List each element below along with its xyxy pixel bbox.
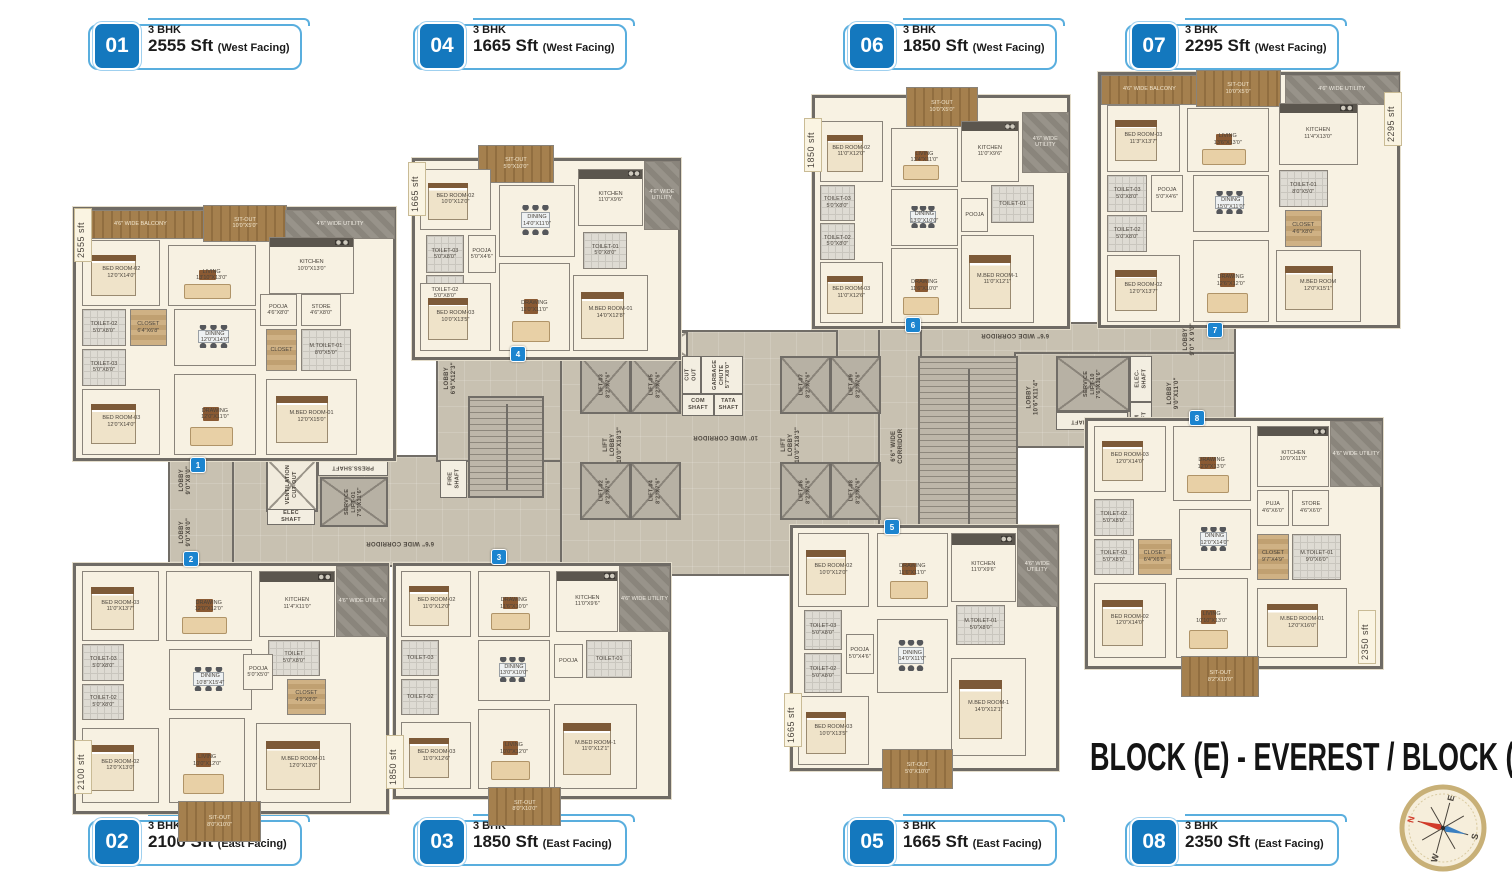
unit-area: 1850 Sft — [473, 832, 538, 851]
room-bed-room-02: BED ROOM-02 11'0"x12'0" — [820, 121, 882, 182]
room-closet: CLOSET 4'6"x8'0" — [1285, 210, 1323, 247]
room-pooja: POOJA 5'0"x4'6" — [1151, 175, 1183, 212]
com: COM SHAFT — [682, 394, 714, 416]
sqft-tag: 2295 sft — [1384, 92, 1402, 146]
room-4-6-wide-utility: 4'6" WIDE UTILITY — [1022, 112, 1069, 173]
room-toilet-03: TOILET-03 5'0"x8'0" — [82, 349, 125, 386]
service-lift: SERVICE LIFT-10 7'6"x11'6" — [1056, 356, 1130, 412]
room-bed-room-02: BED ROOM-02 12'0"x14'0" — [82, 240, 160, 306]
room-4-6-wide-utility: 4'6" WIDE UTILITY — [336, 566, 388, 637]
room-drawing: DRAWING 12'0"x11'0" — [174, 374, 255, 455]
room-bed-room-03: BED ROOM-03 12'0"x14'0" — [1094, 426, 1166, 492]
unit-06-plan: SIT-OUT 10'0"x5'0"4'6" WIDE UTILITYBED R… — [812, 95, 1070, 329]
room-drawing: DRAWING 11'6"x10'0" — [478, 571, 551, 637]
unit-area: 2295 Sft — [1185, 36, 1250, 55]
sofa-icon — [903, 165, 939, 180]
unit-number-badge: 08 — [1130, 818, 1178, 866]
room-4-6-wide-utility: 4'6" WIDE UTILITY — [644, 161, 680, 230]
unit-number-badge: 03 — [418, 818, 466, 866]
room-toilet-03: TOILET-03 — [401, 640, 438, 677]
sqft-tag: 2100 sft — [74, 740, 92, 794]
room-pooja: POOJA 5'0"x4'6" — [468, 235, 496, 272]
room-toilet-01: TOILET-01 — [586, 640, 632, 679]
lobby: LOBBY 10'6"x11'4" — [1016, 366, 1052, 428]
lift-05-lift: LIFT-05 8'2"x7'6" — [630, 356, 681, 414]
room-sit-out: SIT-OUT 5'0"x10'0" — [882, 749, 952, 789]
room-toilet-03: TOILET-03 5'0"x8'0" — [820, 185, 855, 221]
sofa-icon — [184, 284, 231, 299]
room-toilet-03: TOILET-03 5'0"x8'0" — [1094, 539, 1134, 575]
sofa-icon — [1202, 149, 1246, 165]
room-m-bed-room-01: M.BED ROOM-01 12'0"x13'0" — [256, 723, 351, 803]
sofa-icon — [491, 761, 530, 780]
legend-unit-04: 04 3 BHK 1665 Sft (West Facing) — [413, 22, 649, 68]
compass-icon: N S E W — [1399, 784, 1487, 877]
room-m-bed-room-1: M.BED ROOM-1 11'0"x12'1" — [554, 704, 638, 789]
legend-unit-01: 01 3 BHK 2555 Sft (West Facing) — [88, 22, 324, 68]
room-toilet-03: TOILET-03 5'0"x8'0" — [82, 644, 124, 680]
press-shaft: PRESS.SHAFT — [318, 459, 388, 476]
tata: TATA SHAFT — [714, 394, 743, 416]
room-drawing: DRAWING 11'0"x11'0" — [499, 263, 569, 351]
room-pooja: POOJA — [961, 198, 988, 232]
room-living: LIVING 13'10"x13'0" — [168, 245, 256, 307]
service-lift: SERVICE LIFT-01 7'6"x11'6" — [320, 477, 388, 527]
room-drawing: DRAWING 12'0"x12'0" — [166, 571, 252, 642]
6-6-wide-corridor: 6'6" WIDE CORRIDOR — [930, 328, 1100, 342]
room-kitchen: KITCHEN 11'4"x11'0" — [259, 571, 335, 637]
room-m-bed-room-1: M.BED ROOM-1 11'0"x12'1" — [961, 235, 1034, 324]
unit-08-plan: BED ROOM-03 12'0"x14'0"DRAWING 12'0"x13'… — [1085, 418, 1383, 669]
entry-marker-1: 1 — [190, 457, 206, 473]
legend-unit-08: 08 3 BHK 2350 Sft (East Facing) — [1125, 818, 1361, 864]
room-drawing: DRAWING 12'0"x13'0" — [1173, 426, 1251, 502]
entry-marker-6: 6 — [905, 317, 921, 333]
unit-area: 2555 Sft — [148, 36, 213, 55]
sqft-tag: 1850 sft — [804, 118, 822, 172]
unit-number-badge: 04 — [418, 22, 466, 70]
sqft-tag: 2555 sft — [74, 208, 92, 262]
sofa-icon — [491, 613, 530, 629]
unit-number-badge: 06 — [848, 22, 896, 70]
unit-area: 1665 Sft — [903, 832, 968, 851]
unit-05-plan: BED ROOM-02 10'0"x12'0"DRAWING 11'6"x11'… — [790, 525, 1059, 771]
sofa-icon — [903, 297, 939, 315]
room-toilet-01: TOILET-01 5'0"x8'0" — [583, 232, 627, 269]
entry-marker-7: 7 — [1207, 322, 1223, 338]
room-drawing: DRAWING 12'6"x12'0" — [1193, 240, 1269, 322]
sofa-icon — [1187, 475, 1228, 493]
unit-facing: (East Facing) — [1255, 838, 1324, 850]
unit-area: 1850 Sft — [903, 36, 968, 55]
sofa-icon — [890, 581, 928, 599]
staircase — [918, 356, 1018, 544]
unit-number-badge: 07 — [1130, 22, 1178, 70]
sofa-icon — [190, 427, 233, 446]
garbage: GARBAGE CHUTE 5'7"x8'0" — [701, 356, 743, 394]
lift-lobby: LIFT LOBBY 10'0"x18'3" — [776, 416, 808, 474]
unit-facing: (East Facing) — [973, 838, 1042, 850]
room-kitchen: KITCHEN 11'0"x9'6" — [578, 169, 643, 226]
room-bed-room-03: BED ROOM-03 11'3"x13'7" — [1107, 105, 1180, 172]
room-dining: DINING 12'0"x14'0" — [1179, 509, 1251, 570]
room-living: LIVING 10'0"x12'0" — [169, 718, 245, 803]
room-m-bed-room-1: M.BED ROOM-1 14'0"x12'1" — [951, 658, 1027, 756]
room-bed-room-02: BED ROOM-02 10'0"x12'0" — [798, 533, 868, 607]
unit-04-plan: SIT-OUT 5'0"x10'0"BED ROOM-02 10'0"x12'0… — [412, 158, 681, 360]
room-m-bed-room-01: M.BED ROOM-01 12'0"x15'0" — [266, 379, 357, 455]
room-kitchen: KITCHEN 11'4"x13'0" — [1279, 103, 1358, 165]
room-m-bed-room-01: M.BED ROOM-01 14'0"x12'8" — [573, 275, 649, 351]
room-dining: DINING 13'0"x10'0" — [478, 640, 551, 702]
lift-08-lift: LIFT-08 8'2"x7'6" — [830, 462, 881, 520]
room-dining: DINING 15'0"x11'0" — [1193, 175, 1269, 232]
unit-03-plan: BED ROOM-02 11'0"x12'0"DRAWING 11'6"x10'… — [393, 563, 671, 799]
unit-facing: (West Facing) — [543, 42, 615, 54]
room-toilet-02: TOILET-02 5'0"x8'0" — [1094, 499, 1134, 535]
10-wide-corridor: 10' WIDE CORRIDOR — [640, 430, 810, 444]
entry-marker-5: 5 — [884, 519, 900, 535]
unit-02-plan: BED ROOM-03 11'0"x13'7"DRAWING 12'0"x12'… — [73, 563, 389, 814]
room-store: STORE 4'6"x8'0" — [301, 294, 341, 326]
sqft-tag: 1665 sft — [408, 162, 426, 216]
sofa-icon — [1189, 630, 1227, 649]
unit-number-badge: 05 — [848, 818, 896, 866]
cut: CUT OUT — [682, 356, 701, 394]
lift-lobby: LIFT LOBBY 10'0"x18'3" — [598, 416, 630, 474]
entry-marker-2: 2 — [183, 551, 199, 567]
lobby: LOBBY 9'0"x11'0" — [1156, 364, 1192, 422]
6-6-wide-corridor: 6'6" WIDE CORRIDOR — [320, 536, 480, 550]
room-bed-room-03: BED ROOM-03 11'0"x12'6" — [820, 262, 882, 323]
block-title: BLOCK (E) - EVEREST / BLOCK (F) - FUJI — [1090, 735, 1490, 780]
unit-01-plan: 4'6" WIDE BALCONYSIT-OUT 10'0"x5'0"4'6" … — [73, 207, 396, 461]
room-toilet-02: TOILET-02 5'0"x8'0" — [82, 309, 125, 346]
sqft-tag: 1665 sft — [784, 693, 802, 747]
room-pooja: POOJA 5'0"x5'0" — [243, 654, 273, 690]
lift-03-lift: LIFT-03 8'2"x7'6" — [580, 356, 631, 414]
unit-area: 2350 Sft — [1185, 832, 1250, 851]
room-toilet: TOILET 5'0"x8'0" — [268, 640, 320, 676]
room-m-toilet-01: M.TOILET-01 5'0"x8'0" — [956, 605, 1005, 645]
lift-04-lift: LIFT-04 8'2"x7'6" — [630, 462, 681, 520]
sqft-tag: 2350 sft — [1358, 610, 1376, 664]
room-toilet-02: TOILET-02 5'0"x8'0" — [820, 223, 855, 259]
elec-shaft: ELEC-SHAFT — [1130, 356, 1152, 402]
fire: FIRE SHAFT — [440, 460, 467, 498]
room-kitchen: KITCHEN 11'0"x9'6" — [951, 533, 1016, 602]
room-toilet-02: TOILET-02 — [401, 679, 438, 716]
room-4-6-wide-utility: 4'6" WIDE UTILITY — [619, 566, 670, 632]
room-toilet-01: TOILET-01 8'0"x5'0" — [1279, 170, 1328, 207]
room-toilet-03: TOILET-03 5'0"x8'0" — [1107, 175, 1147, 212]
room-m-bed-room-01: M.BED ROOM-01 12'0"x16'0" — [1257, 588, 1347, 659]
room-living: LIVING 13'6"x13'0" — [1187, 108, 1269, 173]
room-pooja: POOJA — [554, 644, 583, 678]
room-4-6-wide-balcony: 4'6" WIDE BALCONY — [1101, 75, 1198, 105]
room-closet: CLOSET 6'4"x6'8" — [1138, 539, 1172, 575]
staircase — [468, 396, 544, 498]
room-dining: DINING 12'0"x14'0" — [174, 309, 255, 366]
entry-marker-8: 8 — [1189, 410, 1205, 426]
entry-marker-3: 3 — [491, 549, 507, 565]
sofa-icon — [182, 617, 228, 634]
room-pooja: POOJA 4'6"x8'0" — [260, 294, 297, 326]
unit-number-badge: 02 — [93, 818, 141, 866]
room-kitchen: KITCHEN 11'0"x9'6" — [556, 571, 618, 633]
room-living: LIVING 10'0"x12'0" — [478, 709, 551, 789]
ventilation: VENTILATION CUT-OUT — [266, 458, 318, 512]
room-pooja: POOJA 5'0"x4'6" — [846, 634, 874, 674]
room-dining: DINING 14'0"x11'0" — [499, 185, 575, 258]
room-4-6-wide-utility: 4'6" WIDE UTILITY — [1330, 421, 1382, 487]
room-kitchen: KITCHEN 11'0"x9'6" — [961, 121, 1018, 182]
unit-facing: (West Facing) — [1255, 42, 1327, 54]
room-bed-room-02: BED ROOM-02 11'0"x12'0" — [401, 571, 471, 637]
room-bed-room-03: BED ROOM-03 12'0"x14'0" — [82, 389, 160, 455]
room-toilet-01: TOILET-01 — [991, 185, 1033, 223]
room-toilet-03: TOILET-03 5'0"x8'0" — [804, 610, 843, 650]
room-sit-out: SIT-OUT 10'0"x5'0" — [203, 205, 287, 242]
room-drawing: DRAWING 11'6"x10'0" — [891, 248, 959, 323]
legend-unit-07: 07 3 BHK 2295 Sft (West Facing) — [1125, 22, 1361, 68]
lift-09-lift: LIFT-09 8'2"x7'6" — [830, 356, 881, 414]
room-closet: CLOSET 4'9"x8'0" — [287, 679, 326, 715]
room-bed-room-02: BED ROOM-02 12'0"x13'7" — [1107, 255, 1180, 322]
room-dining: DINING 13'0"x10'0" — [891, 189, 959, 246]
room-sit-out: SIT-OUT 8'0"x10'0" — [488, 787, 561, 826]
unit-facing: (West Facing) — [218, 42, 290, 54]
entry-marker-4: 4 — [510, 346, 526, 362]
room-toilet-02: TOILET-02 5'0"x8'0" — [804, 653, 843, 693]
room-living: LIVING 13'4"x11'0" — [891, 128, 959, 187]
room-living: LIVING 10'10"x13'0" — [1176, 578, 1248, 658]
room-4-6-wide-utility: 4'6" WIDE UTILITY — [285, 210, 395, 239]
room-bed-room-02: BED ROOM-02 12'0"x14'0" — [1094, 583, 1166, 659]
lobby: LOBBY 6'6"x12'3" — [436, 356, 466, 400]
unit-number-badge: 01 — [93, 22, 141, 70]
room-kitchen: KITCHEN 10'0"x11'0" — [1257, 426, 1329, 487]
6-6-wide-corridor: 6'6" WIDE CORRIDOR — [880, 366, 916, 526]
sofa-icon — [183, 774, 224, 794]
room-toilet-02: TOILET-02 5'0"x8'0" — [1107, 215, 1147, 252]
room-sit-out: SIT-OUT 10'0"x5'0" — [1196, 70, 1281, 107]
room-store: STORE 4'6"x6'0" — [1292, 490, 1329, 526]
room-toilet-03: TOILET-03 5'0"x8'0" — [426, 235, 465, 272]
unit-facing: (East Facing) — [543, 838, 612, 850]
room-dining: DINING 10'8"x15'4" — [169, 649, 252, 710]
floorplan-page: { "title": "BLOCK (E) - EVEREST / BLOCK … — [0, 0, 1512, 882]
lift-07-lift: LIFT-07 8'2"x7'6" — [780, 356, 831, 414]
room-bed-room-02: BED ROOM-02 10'0"x12'0" — [420, 169, 490, 230]
room-drawing: DRAWING 11'6"x11'0" — [877, 533, 947, 607]
room-bed-room-03: BED ROOM-03 11'0"x12'6" — [401, 722, 471, 788]
room-4-6-wide-balcony: 4'6" WIDE BALCONY — [76, 210, 205, 239]
room-closet: CLOSET 6'4"x6'8" — [130, 309, 167, 346]
room-4-6-wide-utility: 4'6" WIDE UTILITY — [1285, 75, 1399, 105]
room-sit-out: SIT-OUT 8'0"x10'0" — [178, 801, 261, 842]
unit-area: 1665 Sft — [473, 36, 538, 55]
elec: ELEC SHAFT — [267, 509, 315, 525]
room-kitchen: KITCHEN 10'0"x13'0" — [269, 237, 353, 294]
room-sit-out: SIT-OUT 8'2"x10'0" — [1181, 656, 1259, 697]
sofa-icon — [1207, 293, 1247, 313]
legend-unit-06: 06 3 BHK 1850 Sft (West Facing) — [843, 22, 1079, 68]
room-m-toilet-01: M.TOILET-01 9'0"x6'0" — [1292, 534, 1341, 580]
room-puja: PUJA 4'6"x6'0" — [1257, 490, 1288, 526]
room-bed-room-02: BED ROOM-02 12'0"x13'0" — [82, 728, 158, 804]
room-bed-room-03: BED ROOM-03 11'0"x13'7" — [82, 571, 158, 642]
room-m-toilet-01: M.TOILET-01 8'0"x5'0" — [301, 329, 351, 371]
room-closet: CLOSET 9'7"x4'9" — [1257, 534, 1288, 580]
legend-unit-05: 05 3 BHK 1665 Sft (East Facing) — [843, 818, 1079, 864]
room-m-bed-room: M.BED ROOM 12'0"x15'1" — [1276, 250, 1361, 322]
unit-facing: (West Facing) — [973, 42, 1045, 54]
lobby: LOBBY 9'0"x8'0" — [172, 510, 200, 554]
unit-07-plan: 4'6" WIDE BALCONYSIT-OUT 10'0"x5'0"4'6" … — [1098, 72, 1400, 328]
room-toilet-02: TOILET-02 5'0"x8'0" — [82, 684, 124, 720]
room-bed-room-03: BED ROOM-03 10'0"x13'5" — [798, 696, 868, 765]
room-4-6-wide-utility: 4'6" WIDE UTILITY — [1017, 528, 1058, 607]
sqft-tag: 1850 sft — [386, 735, 404, 789]
room-closet: CLOSET — [266, 329, 297, 371]
sofa-icon — [512, 321, 550, 342]
room-dining: DINING 14'0"x11'0" — [877, 619, 947, 693]
